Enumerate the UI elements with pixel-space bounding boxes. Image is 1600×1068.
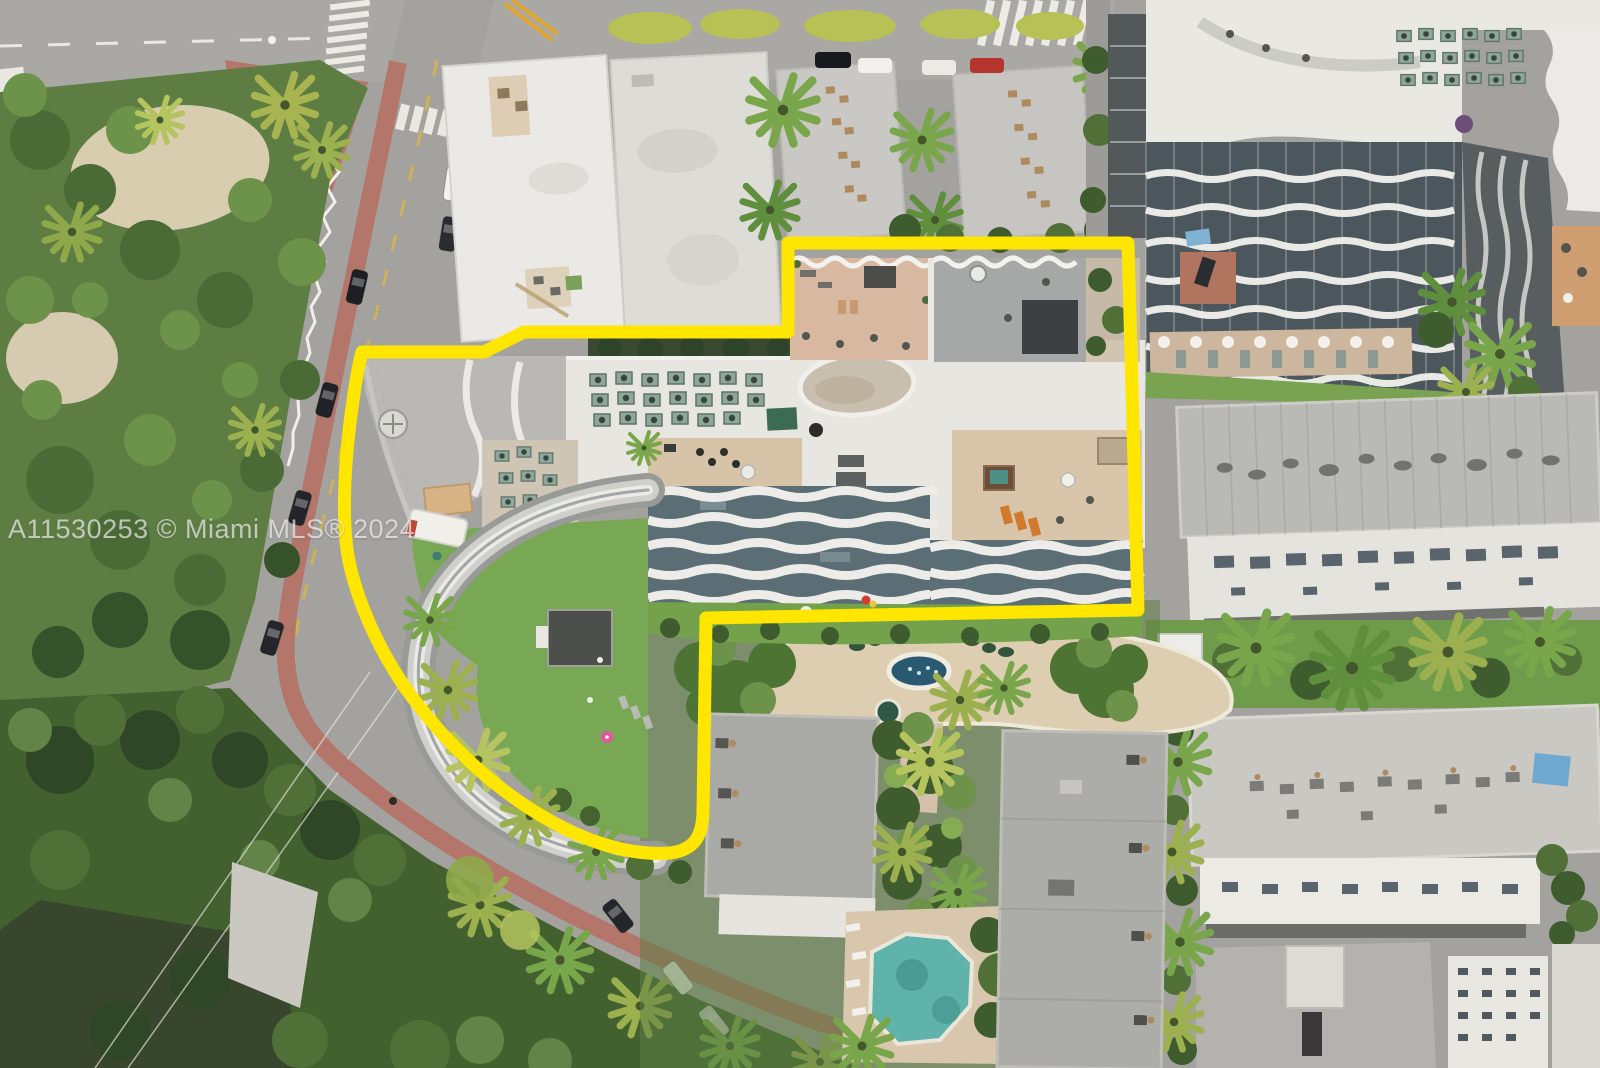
aerial-photo: A11530253 © Miami MLS® 2024 <box>0 0 1600 1068</box>
pedestrian <box>389 797 397 805</box>
green-skylight <box>766 407 797 431</box>
condo-west-wing <box>1108 14 1148 238</box>
right-mid-building <box>1177 393 1600 630</box>
condo-courtyard <box>1552 226 1600 326</box>
building-a <box>442 55 625 342</box>
car-red <box>970 58 1004 73</box>
blue-tarp-2 <box>1532 753 1571 787</box>
courtyard-pavilion <box>548 610 612 666</box>
bottom-right-buildings <box>1143 705 1600 1068</box>
building-d <box>953 65 1094 240</box>
sandy-patch-2 <box>6 312 118 404</box>
black-umbrella <box>809 423 823 437</box>
upper-pink-deck <box>790 258 932 360</box>
apartment-right <box>997 731 1167 1068</box>
car-white-2 <box>922 60 956 75</box>
upper-gray-deck <box>932 258 1086 362</box>
street-lamp <box>268 36 276 44</box>
purple-umbrella <box>1455 115 1473 133</box>
aerial-photo-svg <box>0 0 1600 1068</box>
penthouse-box <box>1286 946 1344 1008</box>
right-roof-deck <box>952 430 1142 542</box>
apartment-left <box>704 714 880 938</box>
car-white <box>858 58 892 73</box>
south-campus <box>640 600 1232 1068</box>
suv-black <box>815 52 851 68</box>
playground-item <box>862 596 871 605</box>
